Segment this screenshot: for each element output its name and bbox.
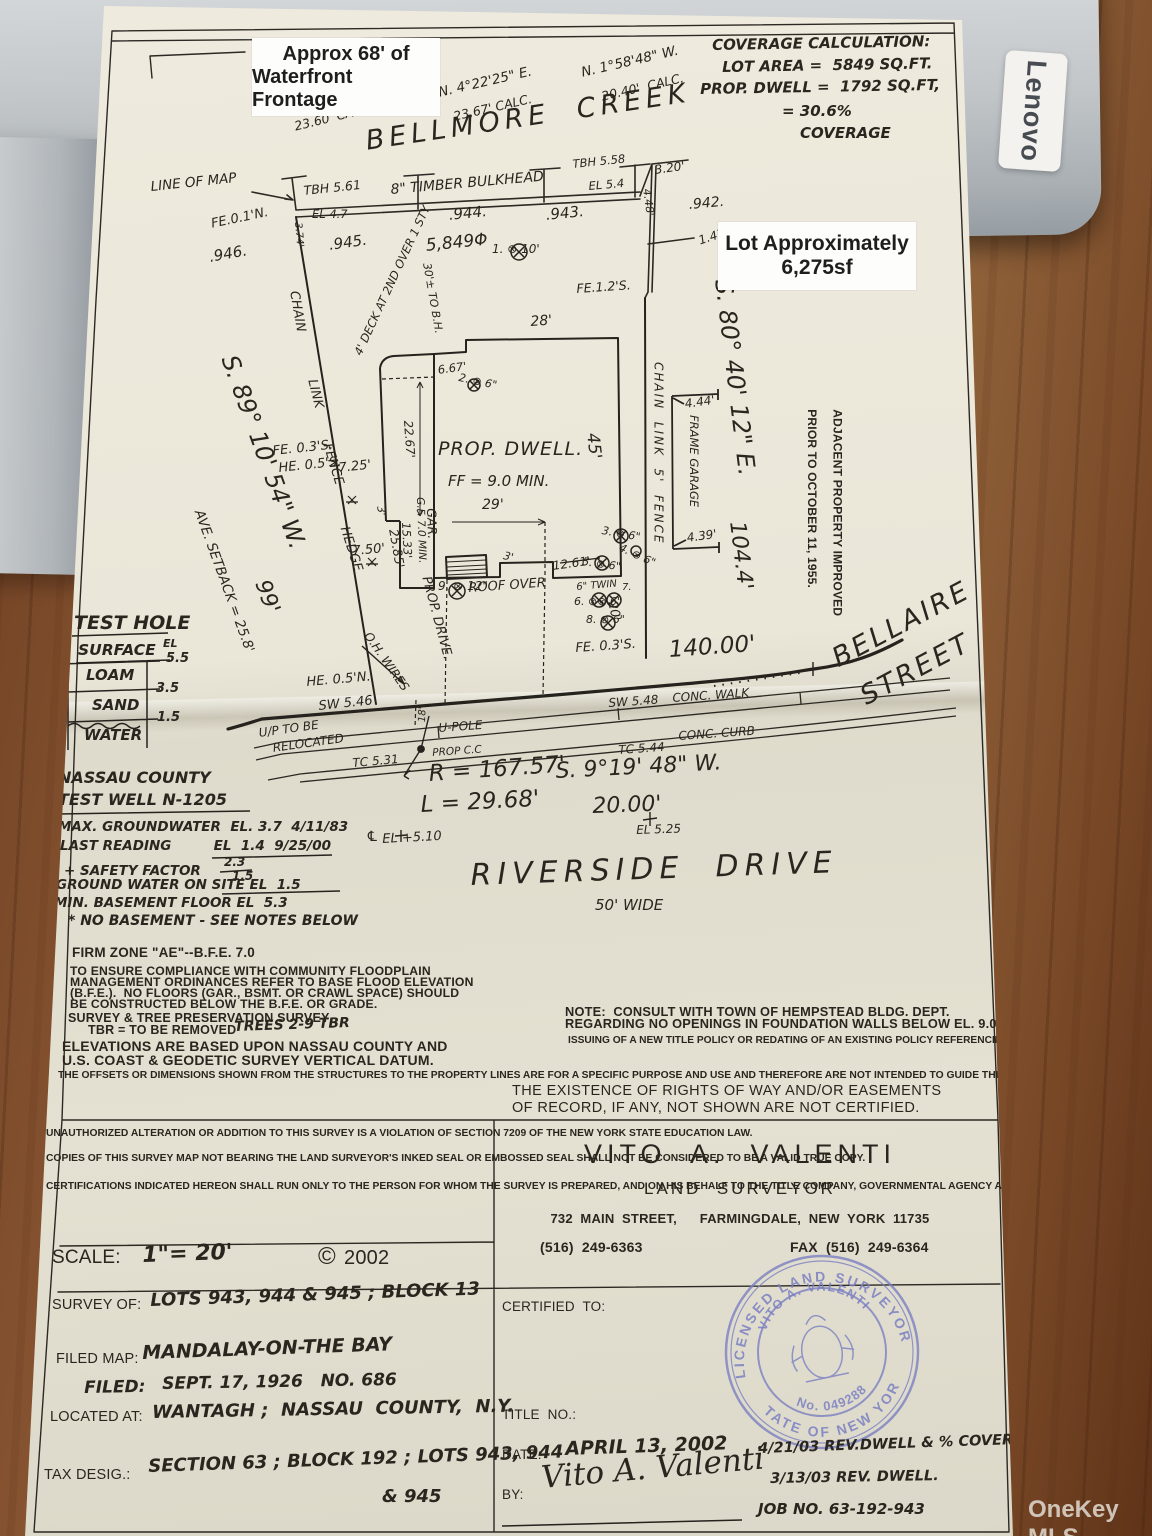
elev-datum-2: U.S. COAST & GEODETIC SURVEY VERTICAL DA… xyxy=(62,1053,434,1068)
dim-2267: 22.67' xyxy=(401,420,416,458)
tc-544: TC 5.44 xyxy=(618,741,665,757)
legal-p2: COPIES OF THIS SURVEY MAP NOT BEARING TH… xyxy=(46,1153,486,1164)
revision-2: 3/13/03 REV. DWELL. xyxy=(770,1469,939,1487)
max-groundwater: MAX. GROUNDWATER EL. 3.7 4/11/83 xyxy=(58,820,348,834)
dim-140: 140.00' xyxy=(668,632,756,662)
laptop-brand-label: Lenovo xyxy=(998,50,1068,172)
el-510: EL +5.10 xyxy=(382,830,442,847)
street-width: 50' WIDE xyxy=(595,898,663,914)
test-well-county: NASSAU COUNTY xyxy=(58,770,211,787)
coverage-percent: = 30.6% xyxy=(782,104,852,120)
val-23: 2.3 xyxy=(224,856,245,869)
located-label: LOCATED AT: xyxy=(50,1410,143,1425)
waterfront-annotation: Approx 68' of Waterfront Frontage xyxy=(252,38,440,116)
waterfront-line-1: Approx 68' of xyxy=(283,43,410,66)
waterfront-line-2: Waterfront Frontage xyxy=(252,66,440,112)
easements-1: THE EXISTENCE OF RIGHTS OF WAY AND/OR EA… xyxy=(512,1084,941,1099)
hempstead-2: REGARDING NO OPENINGS IN FOUNDATION WALL… xyxy=(565,1017,1000,1030)
filed-label: FILED: xyxy=(84,1379,146,1398)
test-hole-15: 1.5 xyxy=(157,711,180,725)
el-54: EL 5.4 xyxy=(588,177,625,192)
lot-942: .942. xyxy=(688,195,725,213)
tbr-note: TBR = TO BE REMOVED xyxy=(88,1024,236,1037)
watermark: OneKey MLS xyxy=(1028,1496,1152,1536)
surveyor-name: VITO A. VALENTI xyxy=(500,1140,980,1168)
tree-9: 9. ⊗ 12" xyxy=(438,580,488,593)
test-hole-water: WATER xyxy=(84,728,142,744)
scale-label: SCALE: xyxy=(52,1248,121,1268)
dim-18: 18' xyxy=(418,707,429,723)
firm-zone: FIRM ZONE "AE"--B.F.E. 7.0 xyxy=(72,946,255,960)
filed-map-label: FILED MAP: xyxy=(56,1352,139,1367)
last-reading: LAST READING EL 1.4 9/25/00 xyxy=(60,839,331,853)
adjacent-note: ADJACENT PROPERTY IMPROVED PRIOR TO OCTO… xyxy=(793,388,856,573)
tree-1: 1. ⊗ 10' xyxy=(492,243,540,256)
test-hole-loam: LOAM xyxy=(86,668,134,684)
easements-2: OF RECORD, IF ANY, NOT SHOWN ARE NOT CER… xyxy=(512,1101,920,1116)
tax-label: TAX DESIG.: xyxy=(44,1468,131,1483)
dim-374: 3.74' xyxy=(292,222,305,248)
el-525: EL 5.25 xyxy=(636,822,681,836)
lot-size-line-1: Lot Approximately xyxy=(725,232,909,256)
el-47: EL 4.7 xyxy=(312,208,348,220)
surveyor-title: LAND SURVEYOR xyxy=(500,1180,980,1198)
surveyor-fax: FAX (516) 249-6364 xyxy=(790,1240,929,1255)
lot-size-line-2: 6,275sf xyxy=(781,256,852,280)
dim-448: 4.48' xyxy=(641,188,656,217)
groundwater-onsite: GROUND WATER ON SITE EL 1.5 xyxy=(56,878,301,892)
right-fence-label: CHAIN LINK 5' FENCE xyxy=(652,362,665,572)
surveyor-phone: (516) 249-6363 xyxy=(540,1240,643,1255)
photo-scene: Lenovo xyxy=(0,0,1152,1536)
frame-garage: FRAME GARAGE xyxy=(688,415,700,545)
test-hole-el: EL xyxy=(163,638,178,650)
job-number: JOB NO. 63-192-943 xyxy=(758,1502,925,1518)
tree-7: 7. xyxy=(622,583,632,594)
survey-of-label: SURVEY OF: xyxy=(52,1298,141,1313)
fence-offset-12s: FE.1.2'S. xyxy=(576,278,631,295)
test-hole-surface: SURFACE xyxy=(78,642,156,658)
u-pole: U-POLE xyxy=(438,719,483,735)
lot-size-annotation: Lot Approximately 6,275sf xyxy=(718,222,916,290)
coverage-word: COVERAGE xyxy=(800,126,891,142)
adjacent-note-line2: PRIOR TO OCTOBER 11, 1955. xyxy=(805,409,819,588)
legal-p3: CERTIFICATIONS INDICATED HEREON SHALL RU… xyxy=(46,1181,486,1192)
no-basement: * NO BASEMENT - SEE NOTES BELOW xyxy=(68,914,358,929)
adjacent-note-line1: ADJACENT PROPERTY IMPROVED xyxy=(830,409,844,616)
date-label: DATE: xyxy=(502,1448,542,1462)
tax-value-2: & 945 xyxy=(382,1488,442,1507)
laptop-brand-text: Lenovo xyxy=(1014,59,1052,163)
dim-3a: 3' xyxy=(375,505,388,517)
bearing-front-dist: 20.00' xyxy=(592,793,662,818)
legal-p1: UNAUTHORIZED ALTERATION OR ADDITION TO T… xyxy=(46,1128,486,1139)
title-no-label: TITLE NO.: xyxy=(502,1408,576,1422)
coverage-lot-area: LOT AREA = 5849 SQ.FT. xyxy=(722,56,933,75)
test-hole-title: TEST HOLE xyxy=(74,614,190,634)
dim-29: 29' xyxy=(482,498,504,513)
dim-45: 45' xyxy=(582,432,603,460)
centerline-symbol: ℄ xyxy=(366,830,379,845)
surveyor-address: 732 MAIN STREET, FARMINGDALE, NEW YORK 1… xyxy=(500,1212,980,1226)
garage-floor: G.F. 7.0 MIN. xyxy=(414,497,427,564)
test-well-id: TEST WELL N-1205 xyxy=(58,792,227,809)
test-hole-sand: SAND xyxy=(92,698,139,714)
copyright-symbol: © xyxy=(318,1244,336,1269)
offsets-note: THE OFFSETS OR DIMENSIONS SHOWN FROM THE… xyxy=(58,1071,500,1082)
title-policy-note: ISSUING OF A NEW TITLE POLICY OR REDATIN… xyxy=(568,1036,956,1047)
certified-to-label: CERTIFIED TO: xyxy=(502,1300,605,1314)
test-hole-35: 3.5 xyxy=(156,682,179,696)
test-hole-el-val: 5.5 xyxy=(166,652,189,666)
finished-floor: FF = 9.0 MIN. xyxy=(448,474,549,490)
curve-length: L = 29.68' xyxy=(420,787,540,817)
dim-20: 20' xyxy=(605,600,623,623)
prop-dwell: PROP. DWELL. xyxy=(438,440,583,460)
min-basement: MIN. BASEMENT FLOOR EL 5.3 xyxy=(54,896,288,910)
dim-28: 28' xyxy=(530,313,553,329)
by-label: BY: xyxy=(502,1488,524,1502)
flood-p1d: BE CONSTRUCTED BELOW THE B.F.E. OR GRADE… xyxy=(70,998,377,1011)
copyright-year: 2002 xyxy=(344,1248,389,1269)
scale-value: 1"= 20' xyxy=(142,1241,233,1267)
